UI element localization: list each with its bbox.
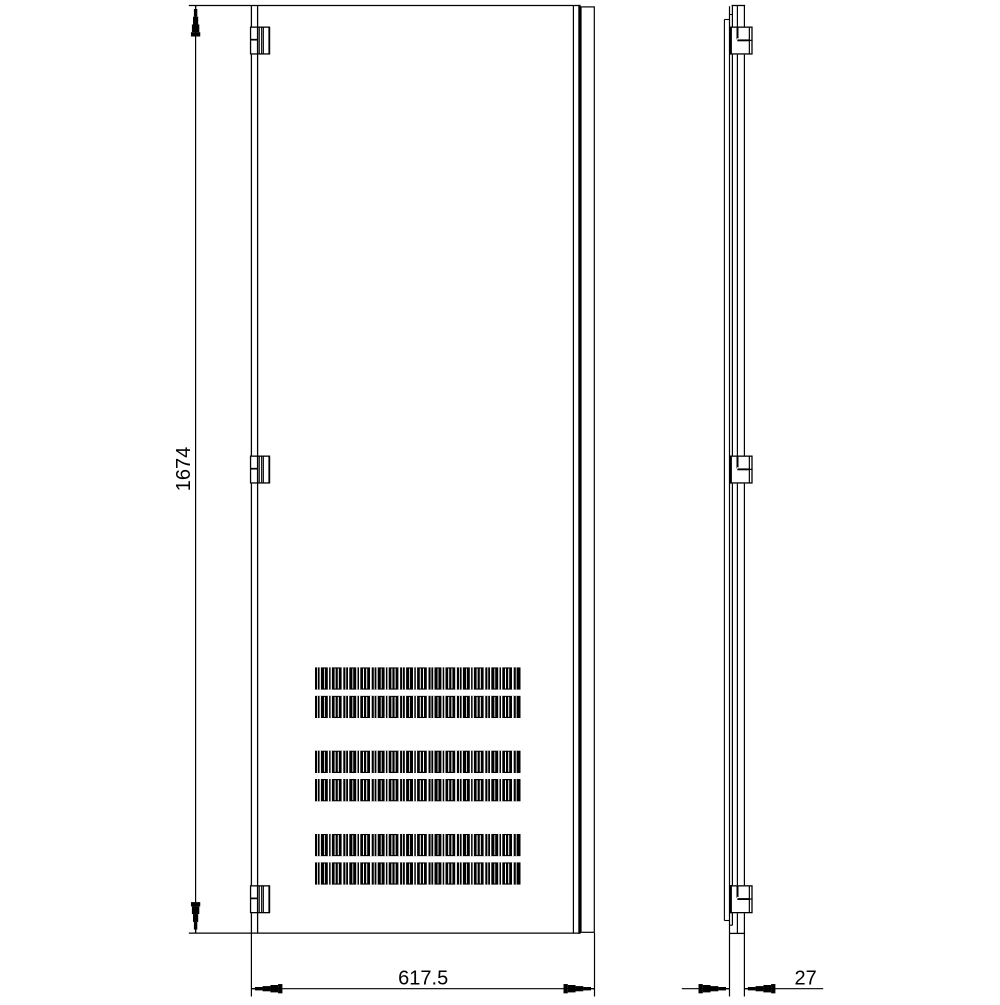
svg-text:27: 27 [794,968,816,990]
svg-text:617.5: 617.5 [398,968,448,990]
svg-text:1674: 1674 [173,447,195,492]
